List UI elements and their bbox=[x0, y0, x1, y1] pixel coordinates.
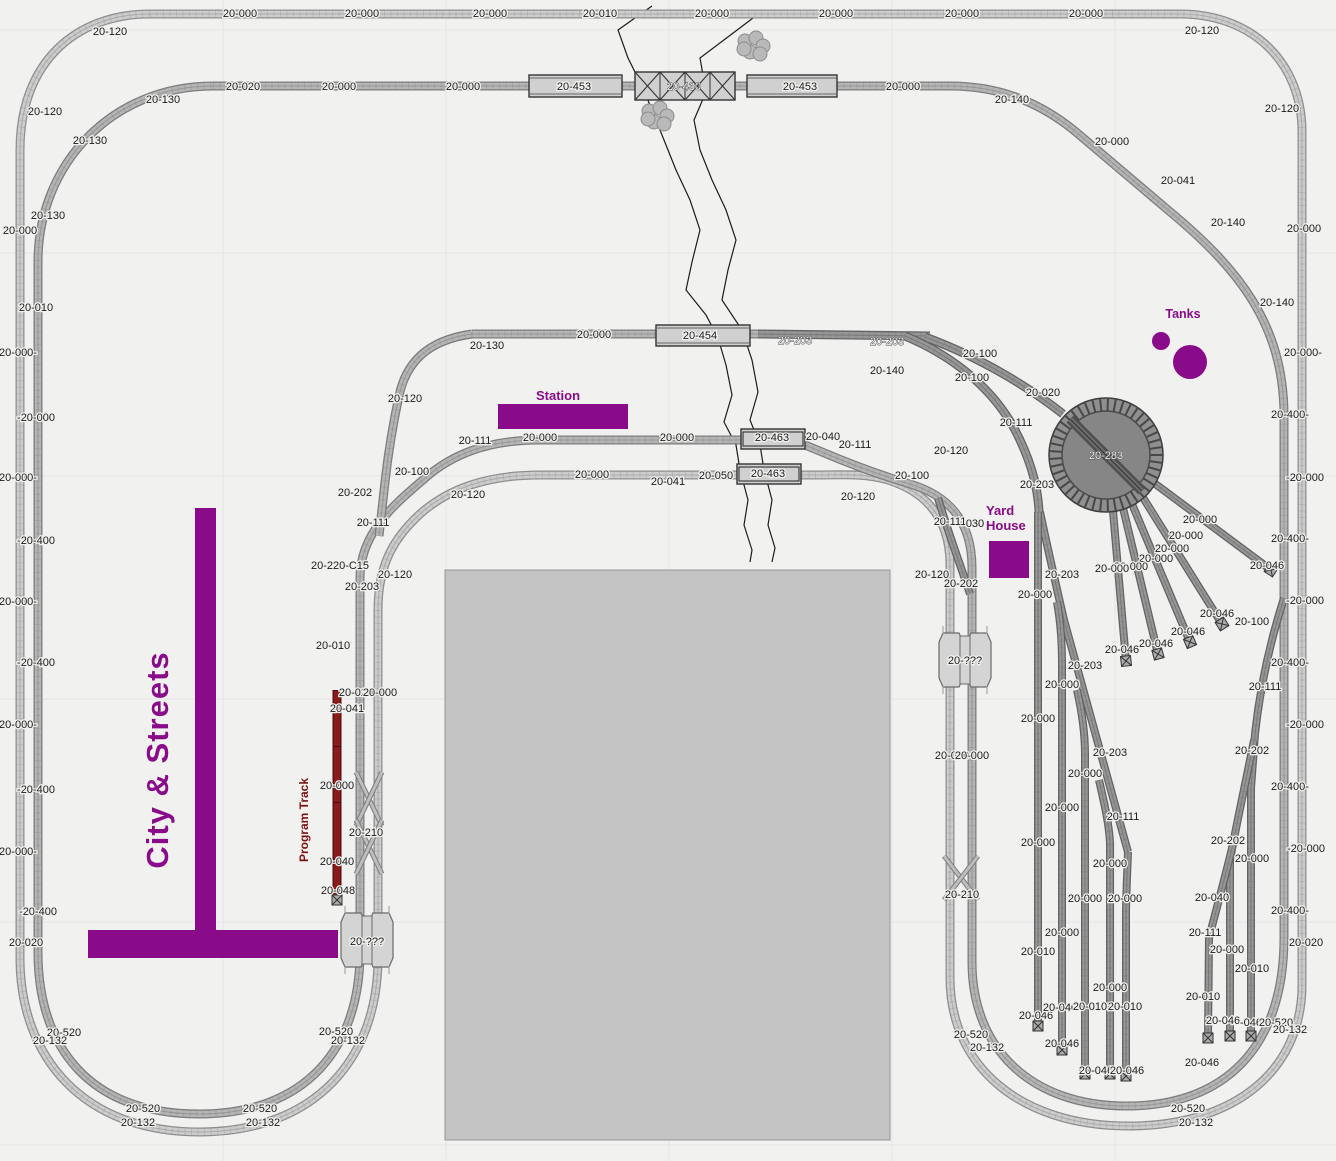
track-label: 20-046 bbox=[1185, 1057, 1219, 1069]
track-label: 20-120 bbox=[93, 26, 127, 38]
track-label: -20-400 bbox=[17, 784, 55, 796]
turntable-label: 20-283 bbox=[1089, 450, 1123, 462]
track-label: 20-000 bbox=[345, 8, 379, 20]
track-label: 20-046 bbox=[1079, 1065, 1113, 1077]
track-label: -20-000 bbox=[1287, 843, 1325, 855]
track-label: 20-000- bbox=[1284, 347, 1322, 359]
track-label: 20-000 bbox=[577, 329, 611, 341]
track-label: 20-000 bbox=[660, 432, 694, 444]
track-label: 20-000 bbox=[523, 432, 557, 444]
track-label: 20-100 bbox=[1235, 616, 1269, 628]
turntable-ring-tick bbox=[1049, 458, 1062, 459]
track-label: -20-400 bbox=[19, 906, 57, 918]
track-label: 20-000 bbox=[1210, 944, 1244, 956]
building-footprint[interactable] bbox=[445, 570, 890, 1140]
track-label: 20-202 bbox=[1211, 835, 1245, 847]
track-label: 20-400- bbox=[1271, 781, 1309, 793]
track-label: 20-130 bbox=[146, 94, 180, 106]
track-label: 20-010 bbox=[1235, 963, 1269, 975]
station-label[interactable]: Station bbox=[508, 388, 608, 403]
track-label: 20-120 bbox=[378, 569, 412, 581]
track-label: 20-203 bbox=[870, 336, 904, 348]
track-label: 20-111 bbox=[839, 439, 872, 451]
track-label: 20-000 bbox=[446, 81, 480, 93]
turntable-ring-tick bbox=[1100, 499, 1101, 512]
track-label: 20-020 bbox=[9, 937, 43, 949]
track-label: 20-000 bbox=[223, 8, 257, 20]
track-bumper[interactable] bbox=[1203, 1033, 1213, 1043]
track-label: 20-000 bbox=[1045, 927, 1079, 939]
track-label: 20-520 bbox=[1171, 1103, 1205, 1115]
tank[interactable] bbox=[1173, 345, 1207, 379]
track-label: 20-046 bbox=[1250, 560, 1284, 572]
track-label: 20-000 bbox=[1235, 853, 1269, 865]
track-label: 20-000 bbox=[320, 780, 354, 792]
track-label: 20-132 bbox=[970, 1042, 1004, 1054]
track-label: -20-400 bbox=[17, 657, 55, 669]
track-label: -20-000 bbox=[1286, 472, 1324, 484]
track-label: 20-041 bbox=[330, 703, 364, 715]
tree-icon bbox=[753, 47, 767, 61]
track-label: 20-000- bbox=[0, 846, 37, 858]
track-label: 20-100 bbox=[895, 470, 929, 482]
track-label: 20-000 bbox=[1021, 713, 1055, 725]
track-label: 20-202 bbox=[338, 487, 372, 499]
track-label: 20-463 bbox=[755, 432, 789, 444]
track-label: 20-000 bbox=[1095, 563, 1129, 575]
track-label: 20-046 bbox=[1045, 1038, 1079, 1050]
track-label: 20-000 bbox=[886, 81, 920, 93]
track-label: 20-400- bbox=[1271, 409, 1309, 421]
track-label: 20-000 bbox=[1093, 982, 1127, 994]
track-label: 20-000- bbox=[0, 596, 37, 608]
track-label: 20-046 bbox=[1105, 644, 1139, 656]
track-label: 20-111 bbox=[1107, 811, 1140, 823]
track-label: 20-132 bbox=[1179, 1117, 1213, 1129]
track-label: 20-140 bbox=[995, 94, 1029, 106]
track-label: 20-400- bbox=[1271, 533, 1309, 545]
track-bumper[interactable] bbox=[1033, 1021, 1043, 1031]
tree-icon bbox=[641, 112, 655, 126]
track-label: 20-010 bbox=[1108, 1001, 1142, 1013]
track-label: 20-430 bbox=[667, 81, 701, 93]
track-label: 20-000 bbox=[1183, 514, 1217, 526]
track-label: 20-000- bbox=[0, 472, 37, 484]
track-label: 20-203 bbox=[778, 335, 812, 347]
track-label: 20-000 bbox=[1095, 136, 1129, 148]
track-label: 20-120 bbox=[1265, 103, 1299, 115]
tree-icon bbox=[737, 42, 751, 56]
street[interactable] bbox=[88, 930, 338, 958]
tanks-label[interactable]: Tanks bbox=[1143, 307, 1223, 321]
track-label: 20-111 bbox=[459, 435, 492, 447]
track-label: 20-040 bbox=[1195, 892, 1229, 904]
track-label: 20-010 bbox=[583, 8, 617, 20]
track-label: 20-000 bbox=[1069, 8, 1103, 20]
track-label: 20-000 bbox=[819, 8, 853, 20]
track-label: 20-000 bbox=[473, 8, 507, 20]
track-label: 20-454 bbox=[683, 330, 717, 342]
yard-house-rect[interactable] bbox=[989, 541, 1029, 578]
track-label: -20-000 bbox=[1286, 595, 1324, 607]
track-label: 030 bbox=[966, 518, 984, 530]
track-label: 20-453 bbox=[557, 81, 591, 93]
track-label: 20-120 bbox=[934, 445, 968, 457]
track-label: 20-??? bbox=[948, 655, 982, 667]
track-label: 20-046 bbox=[1110, 1065, 1144, 1077]
track-label: 20-000 bbox=[363, 687, 397, 699]
track-label: 20-000 bbox=[322, 81, 356, 93]
city-streets-label[interactable]: City & Streets bbox=[140, 640, 174, 880]
track-label: 20-130 bbox=[73, 135, 107, 147]
track-label: 20-111 bbox=[1000, 417, 1033, 429]
track-label: 20-046 bbox=[1206, 1015, 1240, 1027]
track-label: 20-020 bbox=[1026, 387, 1060, 399]
track-label: 20-000 bbox=[1018, 589, 1052, 601]
track-label: 20-463 bbox=[751, 468, 785, 480]
track-label: 20-132 bbox=[331, 1035, 365, 1047]
track-label: 20-048 bbox=[321, 885, 355, 897]
track-label: 20-000 bbox=[1287, 223, 1321, 235]
track-label: 20-041 bbox=[1161, 175, 1195, 187]
track-label: 20-100 bbox=[395, 466, 429, 478]
track-label: 20-520 bbox=[126, 1103, 160, 1115]
station-rect[interactable] bbox=[498, 404, 628, 429]
track-label: 20-130 bbox=[31, 210, 65, 222]
track-label: 20-000 bbox=[1045, 802, 1079, 814]
track-label: 20-010 bbox=[316, 640, 350, 652]
track-label: 20-000 bbox=[1108, 893, 1142, 905]
tree-icon bbox=[657, 117, 671, 131]
track-label: 20-100 bbox=[963, 348, 997, 360]
track-label: 20-111 bbox=[934, 516, 967, 528]
layout-svg: 20-00020-00020-00020-01020-00020-00020-0… bbox=[0, 0, 1336, 1161]
track-label: 20-203 bbox=[1093, 747, 1127, 759]
track-label: 20-000 bbox=[695, 8, 729, 20]
track-label: 20-210 bbox=[945, 889, 979, 901]
track-label: 20-140 bbox=[1260, 297, 1294, 309]
track-label: 20-??? bbox=[350, 936, 384, 948]
yard-house-label[interactable]: Yard House bbox=[986, 503, 1042, 533]
track-label: 20-203 bbox=[345, 581, 379, 593]
track-plan-canvas[interactable]: 20-00020-00020-00020-01020-00020-00020-0… bbox=[0, 0, 1336, 1161]
turntable-ring-tick bbox=[1049, 451, 1062, 452]
track-label: 20-020 bbox=[1289, 937, 1323, 949]
track-label: 20-132 bbox=[121, 1117, 155, 1129]
track-label: 20-120 bbox=[451, 489, 485, 501]
track-label: 20-100 bbox=[955, 372, 989, 384]
track-label: 20-000 bbox=[3, 225, 37, 237]
track-label: 20-120 bbox=[28, 106, 62, 118]
track-label: 20-040 bbox=[806, 431, 840, 443]
track-label: 20-010 bbox=[19, 302, 53, 314]
track-label: 20-041 bbox=[651, 476, 685, 488]
track-label: 20-010 bbox=[1073, 1001, 1107, 1013]
track-label: 20-453 bbox=[783, 81, 817, 93]
track-label: -20-000 bbox=[1286, 719, 1324, 731]
track-label: 20-120 bbox=[1185, 25, 1219, 37]
track-label: -20-400 bbox=[17, 535, 55, 547]
track-label: 20-000- bbox=[0, 347, 37, 359]
track-label: 20-050 bbox=[699, 470, 733, 482]
program-track-label[interactable]: Program Track bbox=[297, 750, 321, 890]
track-label: 20-046 bbox=[1171, 626, 1205, 638]
track-label: 20-046 bbox=[1139, 638, 1173, 650]
track-label: 20-132 bbox=[33, 1035, 67, 1047]
track-label: 20-132 bbox=[1273, 1024, 1307, 1036]
track-label: 20-111 bbox=[1249, 681, 1282, 693]
track-label: 20-400- bbox=[1271, 657, 1309, 669]
track-label: 20-132 bbox=[246, 1117, 280, 1129]
track-label: 20-520 bbox=[954, 1029, 988, 1041]
track-label: 20-203 bbox=[1068, 660, 1102, 672]
track-label: 20-040 bbox=[320, 856, 354, 868]
track-label: 20-140 bbox=[870, 365, 904, 377]
track-label: 20-220-C15 bbox=[311, 560, 369, 572]
track-label: 20-210 bbox=[349, 827, 383, 839]
track-label: 20-000 bbox=[945, 8, 979, 20]
track-label: 20-203 bbox=[1045, 569, 1079, 581]
track-label: -20-000 bbox=[17, 412, 55, 424]
track-label: 20-203 bbox=[1020, 479, 1054, 491]
track-label: 20-000 bbox=[1169, 530, 1203, 542]
track-bumper[interactable] bbox=[1225, 1031, 1235, 1041]
track-bumper[interactable] bbox=[1121, 656, 1132, 667]
track-label: 20-202 bbox=[1235, 745, 1269, 757]
track-label: 20-000 bbox=[575, 469, 609, 481]
street[interactable] bbox=[195, 508, 216, 932]
track-label: 20-000 bbox=[1021, 837, 1055, 849]
track-label: 20-140 bbox=[1211, 217, 1245, 229]
track-label: 20-000- bbox=[0, 719, 37, 731]
track-label: 20-111 bbox=[357, 517, 390, 529]
turntable-ring-tick bbox=[1100, 398, 1101, 411]
track-label: 20-010 bbox=[1021, 946, 1055, 958]
track-label: 20-046 bbox=[1200, 608, 1234, 620]
track-label: 20-120 bbox=[388, 393, 422, 405]
track-label: 20-520 bbox=[243, 1103, 277, 1115]
track-label: 20-000 bbox=[1045, 679, 1079, 691]
track-label: 20-130 bbox=[470, 340, 504, 352]
track-label: 20-010 bbox=[1186, 991, 1220, 1003]
track-label: 20-000 bbox=[1068, 768, 1102, 780]
track-label: 20-000 bbox=[955, 750, 989, 762]
track-label: 20-120 bbox=[841, 491, 875, 503]
track-label: 20-202 bbox=[944, 578, 978, 590]
track-label: 20-000 bbox=[1093, 858, 1127, 870]
track-bumper[interactable] bbox=[1246, 1031, 1256, 1041]
track-label: 20-111 bbox=[1189, 927, 1222, 939]
track-label: 20-020 bbox=[226, 81, 260, 93]
track-label: 20-000 bbox=[1068, 893, 1102, 905]
track-label: 20-400- bbox=[1271, 905, 1309, 917]
tank[interactable] bbox=[1152, 332, 1170, 350]
